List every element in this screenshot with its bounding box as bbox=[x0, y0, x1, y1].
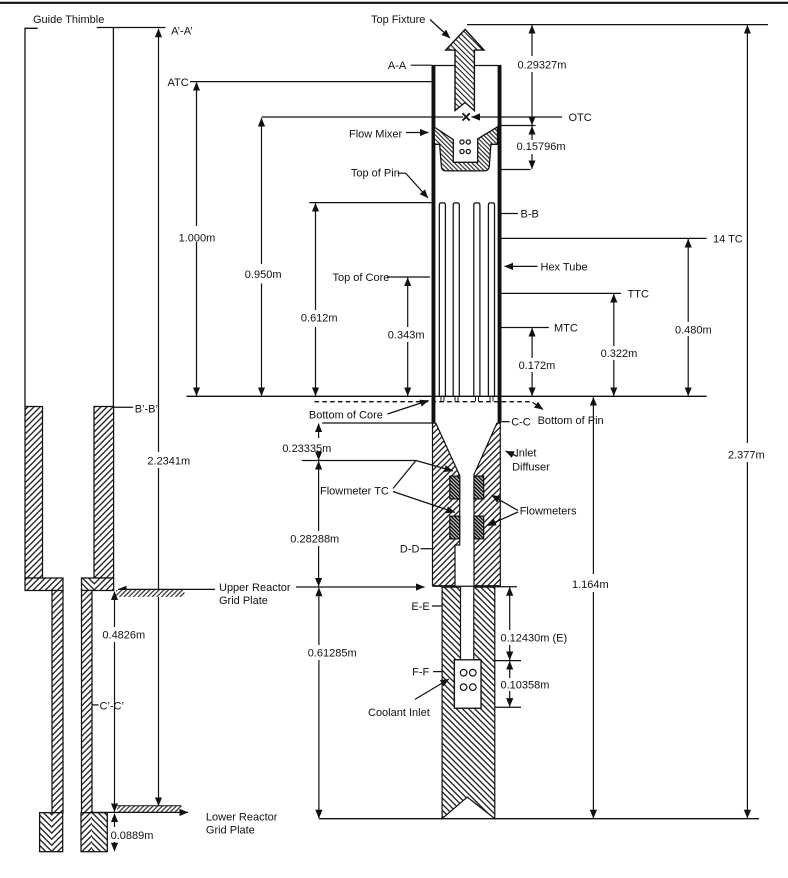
svg-text:C-C: C-C bbox=[511, 417, 531, 429]
svg-text:D-D: D-D bbox=[400, 544, 420, 556]
svg-text:0.950m: 0.950m bbox=[245, 269, 282, 281]
svg-text:Top Fixture: Top Fixture bbox=[371, 14, 425, 26]
svg-text:0.172m: 0.172m bbox=[519, 360, 556, 372]
svg-text:Top of Core: Top of Core bbox=[333, 272, 390, 284]
svg-text:C’-C’: C’-C’ bbox=[100, 701, 124, 713]
svg-text:Flowmeters: Flowmeters bbox=[520, 506, 577, 518]
svg-text:0.28288m: 0.28288m bbox=[290, 534, 339, 546]
svg-text:Coolant Inlet: Coolant Inlet bbox=[368, 707, 430, 719]
svg-text:1.000m: 1.000m bbox=[179, 233, 216, 245]
svg-text:ATC: ATC bbox=[168, 77, 189, 89]
svg-text:2.2341m: 2.2341m bbox=[147, 456, 190, 468]
svg-text:Hex Tube: Hex Tube bbox=[541, 262, 588, 274]
svg-text:A-A: A-A bbox=[388, 60, 407, 72]
svg-text:0.612m: 0.612m bbox=[301, 313, 338, 325]
svg-text:0.12430m (E): 0.12430m (E) bbox=[501, 633, 568, 645]
svg-text:Grid Plate: Grid Plate bbox=[219, 595, 268, 607]
svg-text:0.23335m: 0.23335m bbox=[282, 443, 331, 455]
svg-text:A’-A’: A’-A’ bbox=[171, 26, 193, 38]
svg-text:0.29327m: 0.29327m bbox=[518, 60, 567, 72]
svg-text:TTC: TTC bbox=[628, 289, 649, 301]
svg-text:Diffuser: Diffuser bbox=[512, 462, 550, 474]
svg-text:Top of Pin: Top of Pin bbox=[351, 168, 400, 180]
svg-text:0.4826m: 0.4826m bbox=[102, 630, 145, 642]
svg-text:1.164m: 1.164m bbox=[572, 579, 609, 591]
svg-text:B’-B’: B’-B’ bbox=[135, 404, 158, 416]
svg-text:2.377m: 2.377m bbox=[728, 450, 765, 462]
svg-text:0.0889m: 0.0889m bbox=[111, 830, 154, 842]
svg-text:Flowmeter TC: Flowmeter TC bbox=[320, 486, 389, 498]
svg-text:Lower Reactor: Lower Reactor bbox=[206, 812, 278, 824]
svg-text:0.322m: 0.322m bbox=[601, 348, 638, 360]
svg-text:E-E: E-E bbox=[411, 601, 429, 613]
svg-text:OTC: OTC bbox=[569, 112, 592, 124]
svg-text:Inlet: Inlet bbox=[516, 448, 537, 460]
svg-text:0.480m: 0.480m bbox=[675, 325, 712, 337]
svg-text:0.15796m: 0.15796m bbox=[517, 141, 566, 153]
svg-text:Bottom of Core: Bottom of Core bbox=[309, 410, 383, 422]
svg-text:MTC: MTC bbox=[554, 323, 578, 335]
svg-text:0.343m: 0.343m bbox=[388, 330, 425, 342]
svg-text:14 TC: 14 TC bbox=[713, 234, 743, 246]
svg-text:0.61285m: 0.61285m bbox=[308, 648, 357, 660]
svg-text:Guide Thimble: Guide Thimble bbox=[33, 14, 104, 26]
svg-text:B-B: B-B bbox=[521, 209, 539, 221]
svg-text:Upper Reactor: Upper Reactor bbox=[219, 582, 291, 594]
svg-text:Flow Mixer: Flow Mixer bbox=[349, 129, 403, 141]
svg-text:F-F: F-F bbox=[412, 667, 429, 679]
svg-text:Grid Plate: Grid Plate bbox=[206, 825, 255, 837]
svg-text:0.10358m: 0.10358m bbox=[501, 680, 550, 692]
